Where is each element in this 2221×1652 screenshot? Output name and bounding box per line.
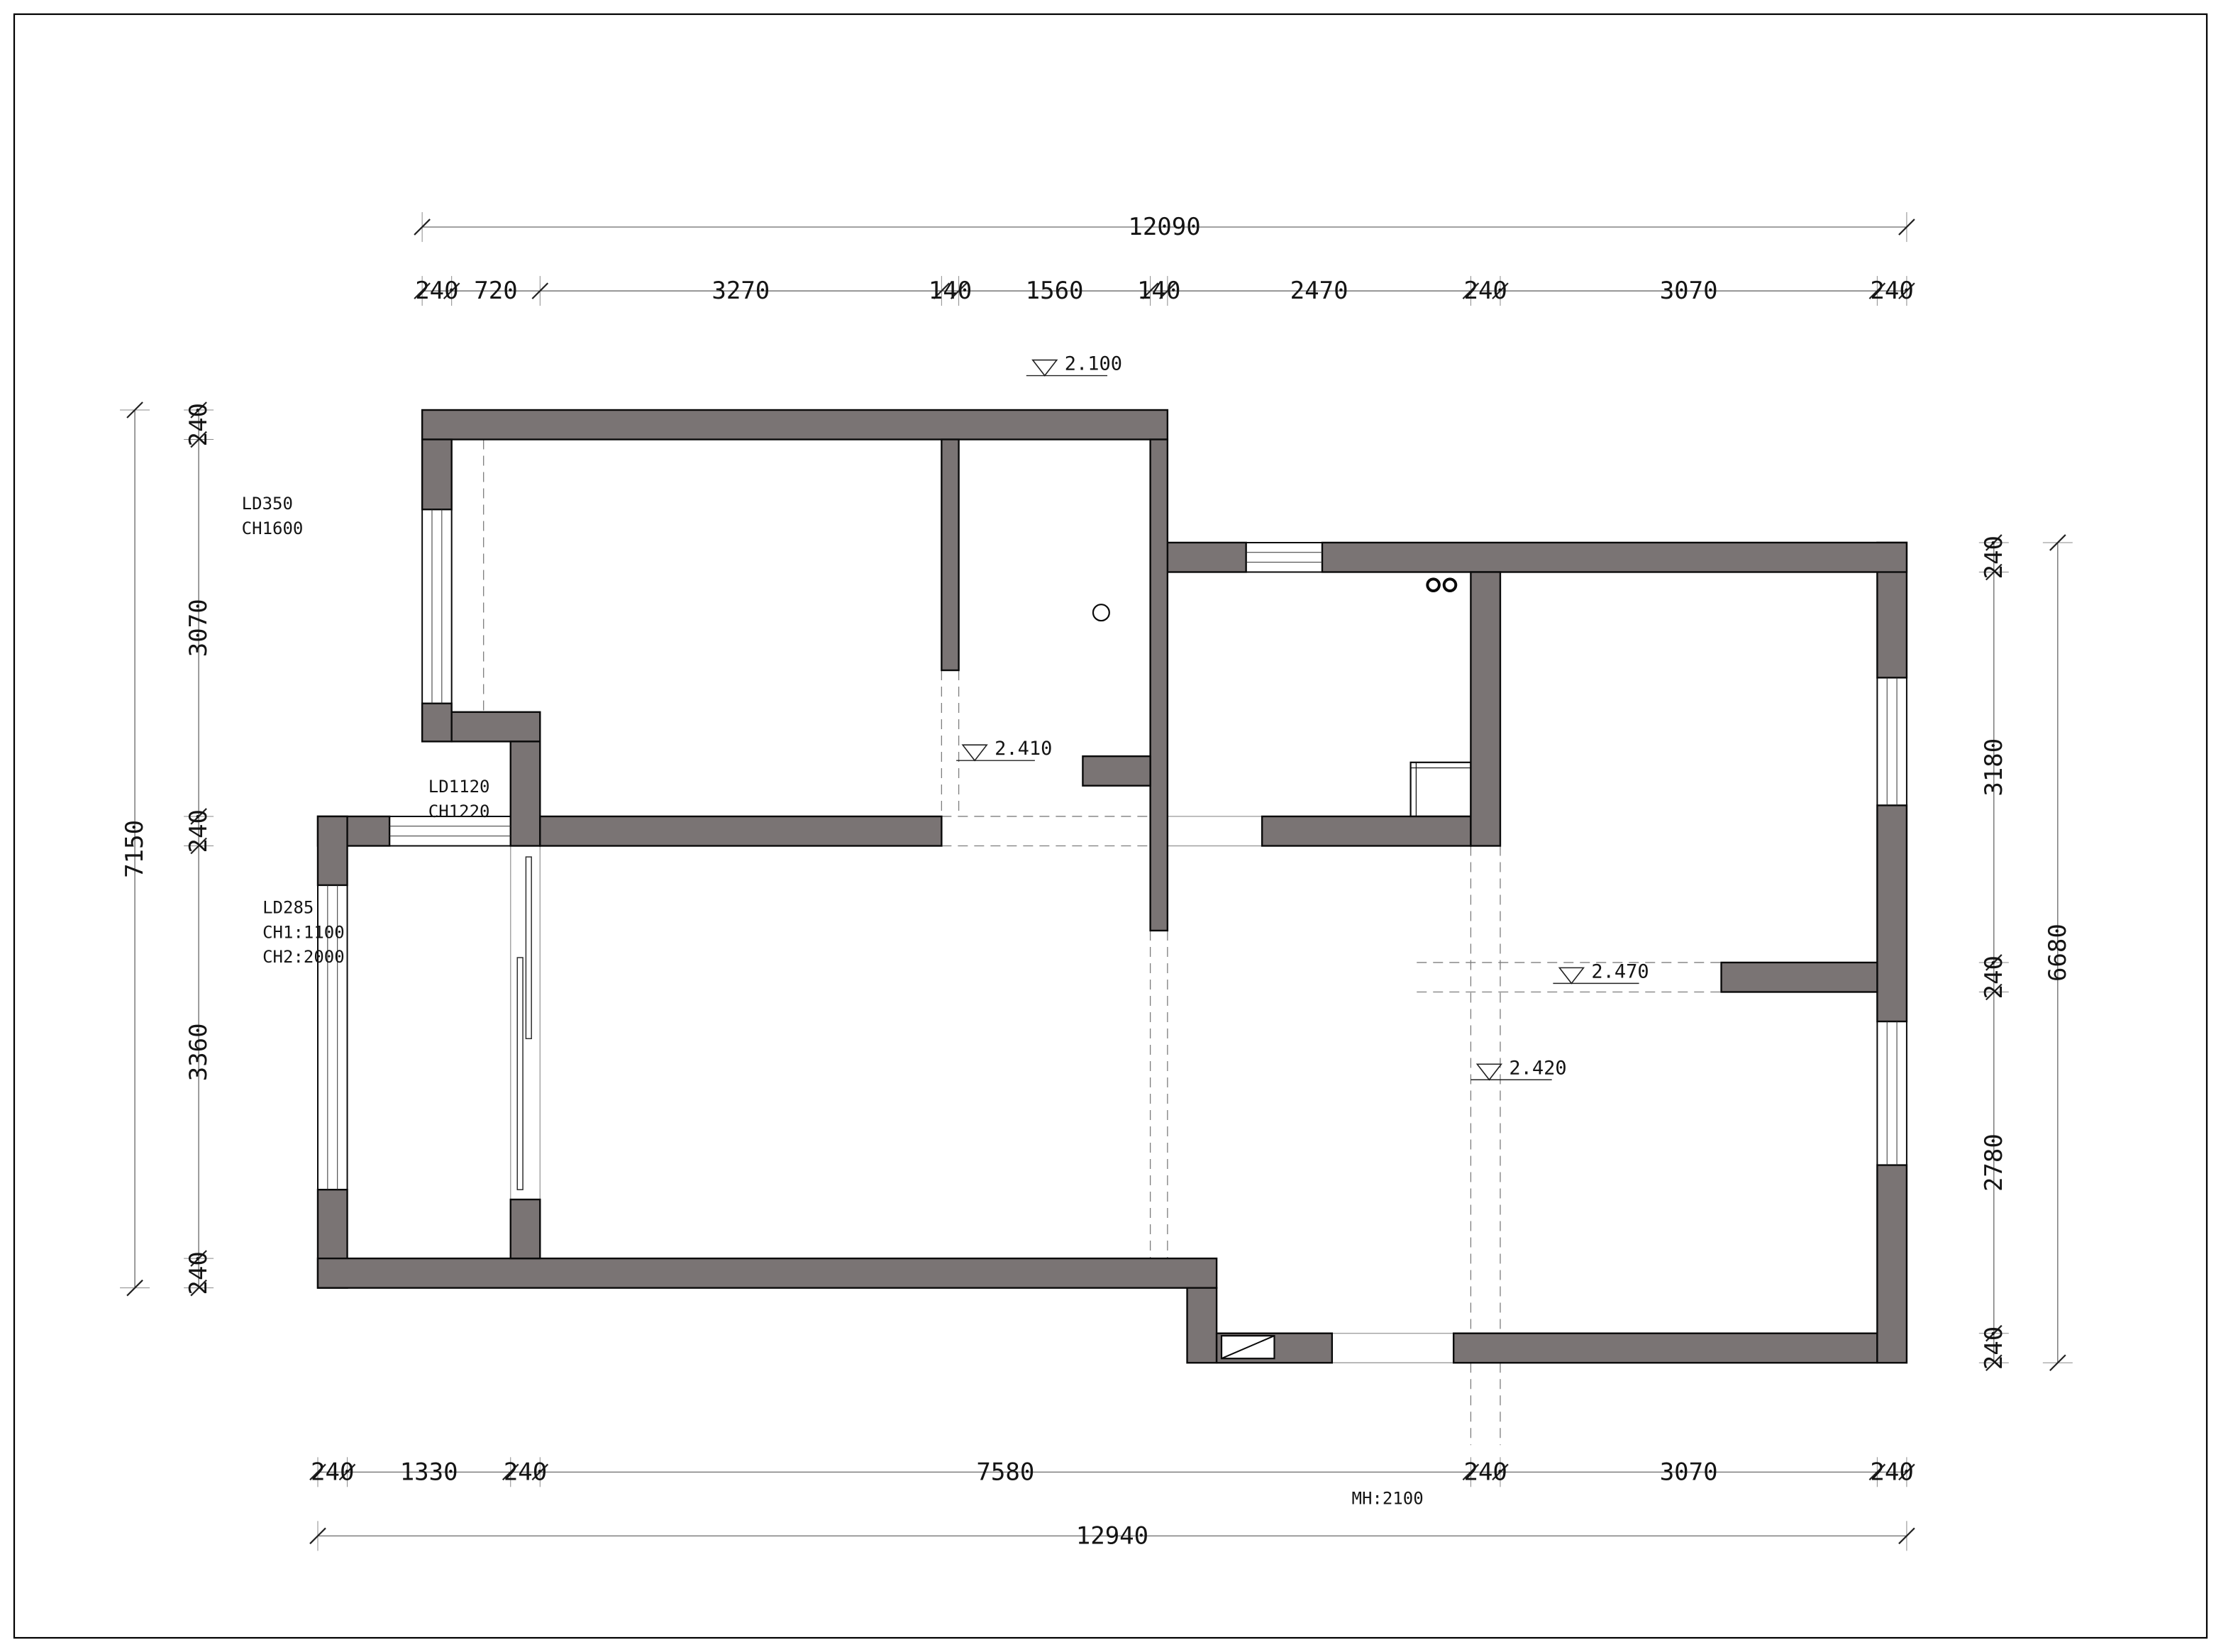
dimension-label: 2780 — [1980, 1133, 2008, 1192]
level-value: 2.420 — [1509, 1057, 1566, 1079]
fixture-circle — [1093, 604, 1109, 621]
dimension-label: 2470 — [1290, 277, 1348, 305]
dimension-label: 6680 — [2044, 924, 2072, 982]
wall — [540, 816, 941, 846]
dimension-label: 720 — [474, 277, 517, 305]
fixture-circle — [1427, 579, 1439, 591]
dimension-label: 240 — [1870, 277, 1913, 305]
level-value: 2.470 — [1591, 960, 1649, 982]
label-line: CH1600 — [242, 519, 304, 538]
wall — [1151, 440, 1168, 931]
dimension-label: 12940 — [1076, 1521, 1148, 1550]
wall — [1453, 1334, 1877, 1363]
dimension-label: 1330 — [400, 1458, 458, 1486]
dimension-label: 3180 — [1980, 738, 2008, 797]
wall — [422, 410, 1168, 440]
dimension-label: 240 — [1980, 1326, 2008, 1370]
wall — [318, 1258, 1217, 1288]
dimension-label: 140 — [929, 277, 972, 305]
wall — [1470, 572, 1500, 846]
dimension-label: 7580 — [976, 1458, 1034, 1486]
wall — [1322, 543, 1907, 572]
wall — [422, 440, 452, 510]
dimension-label: 240 — [1980, 955, 2008, 999]
label-line: LD285 — [262, 898, 314, 918]
wall — [1168, 543, 1246, 572]
dimension-label: 1560 — [1026, 277, 1084, 305]
dimension-label: 240 — [184, 403, 213, 446]
sliding-door-panel — [517, 958, 523, 1190]
dimension-label: 3070 — [1660, 277, 1718, 305]
label-line: LD350 — [242, 494, 293, 514]
dimension-label: 240 — [1463, 277, 1507, 305]
wall — [1262, 816, 1470, 846]
dimension-label: 240 — [1980, 536, 2008, 579]
level-value: 2.100 — [1065, 353, 1122, 375]
dimension-label: 240 — [1463, 1458, 1507, 1486]
wall — [318, 816, 348, 885]
wall — [941, 440, 958, 670]
floor-plan-canvas: 1209024072032701401560140247024030702402… — [0, 0, 2221, 1652]
label-line: MH:2100 — [1352, 1488, 1424, 1508]
wall — [1187, 1288, 1217, 1363]
label-line: LD1120 — [428, 777, 490, 797]
wall — [422, 704, 452, 742]
dimension-label: 240 — [504, 1458, 547, 1486]
floor-plan-svg: 1209024072032701401560140247024030702402… — [0, 0, 2221, 1652]
entry-door-label: MH:2100 — [1352, 1488, 1424, 1508]
dimension-label: 240 — [184, 809, 213, 853]
fixture-circle — [1444, 579, 1456, 591]
wall — [452, 712, 541, 742]
wall — [1877, 1165, 1907, 1363]
dimension-label: 3270 — [711, 277, 770, 305]
dimension-label: 3070 — [1660, 1458, 1718, 1486]
label-line: CH1220 — [428, 802, 490, 821]
dimension-label: 240 — [415, 277, 458, 305]
label-line: CH2:2000 — [262, 947, 345, 967]
dimension-label: 3360 — [184, 1023, 213, 1081]
dimension-label: 240 — [1870, 1458, 1913, 1486]
wall — [511, 1199, 541, 1258]
dimension-label: 3070 — [184, 599, 213, 657]
wall — [511, 741, 541, 846]
dimension-label: 140 — [1137, 277, 1180, 305]
sliding-door-panel — [526, 857, 531, 1038]
dimension-label: 12090 — [1128, 213, 1200, 241]
dimension-label: 240 — [184, 1251, 213, 1295]
dimension-label: 7150 — [121, 820, 149, 878]
label-line: CH1:1100 — [262, 922, 345, 942]
wall — [1082, 756, 1150, 786]
level-value: 2.410 — [995, 738, 1052, 760]
wall — [1722, 963, 1878, 992]
wall — [1877, 805, 1907, 1021]
dimension-label: 240 — [311, 1458, 354, 1486]
